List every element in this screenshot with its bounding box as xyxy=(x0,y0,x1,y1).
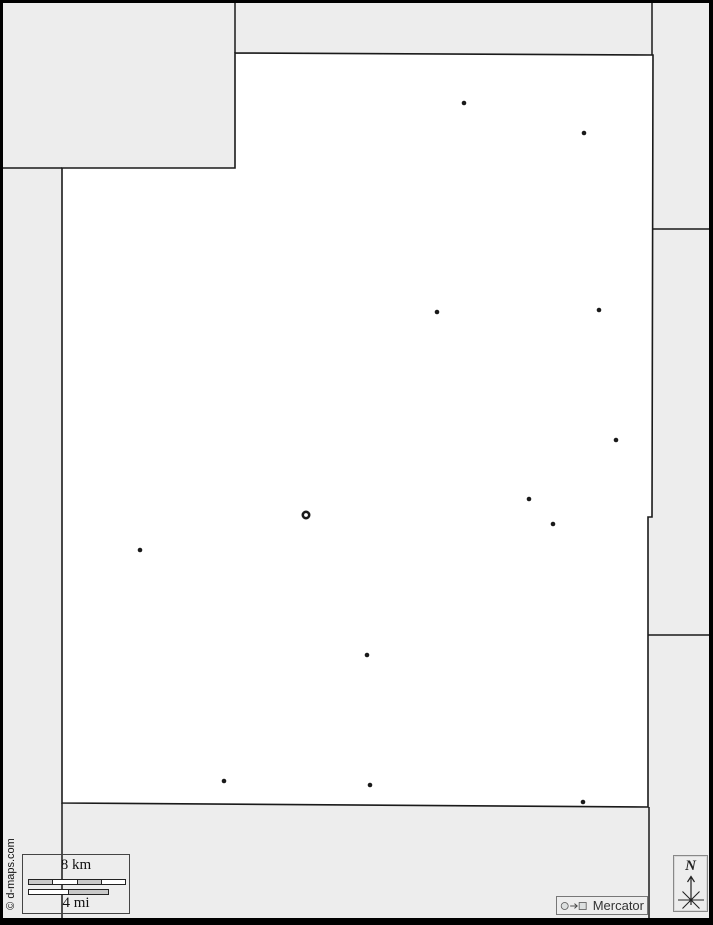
map-svg xyxy=(0,0,713,925)
capital-ring-dot xyxy=(303,512,309,518)
scale-segment xyxy=(29,880,52,884)
north-box: N xyxy=(673,855,708,912)
scale-segment xyxy=(52,880,76,884)
projection-label: Mercator xyxy=(593,898,644,913)
city-dot xyxy=(368,783,373,788)
projection-badge: Mercator xyxy=(556,896,648,915)
city-dot xyxy=(138,548,143,553)
projection-transform-icon xyxy=(560,899,590,913)
map-canvas: 8 km 4 mi © d-maps.com Mercator N xyxy=(0,0,713,925)
frame-right-bar xyxy=(709,0,713,925)
city-dot xyxy=(551,522,556,527)
frame-bottom-bar xyxy=(0,918,713,925)
globe-circle-icon xyxy=(561,902,568,909)
city-dot xyxy=(597,308,602,313)
scale-segment xyxy=(101,880,125,884)
north-label: N xyxy=(674,859,707,874)
outer-frame xyxy=(2,2,712,924)
city-dot xyxy=(527,497,532,502)
region-outline xyxy=(62,53,653,807)
city-dot xyxy=(365,653,370,658)
scale-segment xyxy=(68,890,108,894)
scale-box: 8 km 4 mi xyxy=(22,854,130,914)
scale-km-bar xyxy=(28,879,126,885)
scale-segment xyxy=(29,890,68,894)
compass-icon xyxy=(676,874,706,910)
scale-km-label: 8 km xyxy=(23,858,129,873)
scale-segment xyxy=(77,880,101,884)
city-dot xyxy=(222,779,227,784)
projected-square-icon xyxy=(579,902,586,909)
city-dot xyxy=(582,131,587,136)
city-dot xyxy=(614,438,619,443)
city-dot xyxy=(462,101,467,106)
copyright-text: © d-maps.com xyxy=(5,838,17,910)
city-dot xyxy=(435,310,440,315)
city-dot xyxy=(581,800,586,805)
scale-mi-label: 4 mi xyxy=(23,896,129,911)
